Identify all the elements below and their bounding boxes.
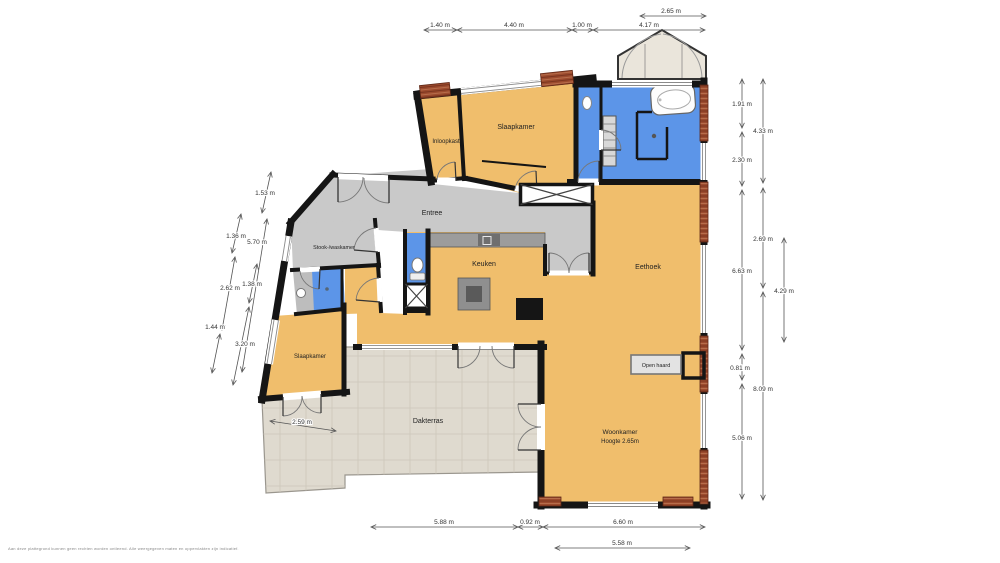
- radiator-icon: [603, 116, 616, 166]
- kitchen-island: [458, 278, 490, 310]
- stook-label: Stook-/waskamer: [313, 245, 355, 251]
- dim-label: 1.00 m: [572, 22, 592, 29]
- floorplan-page: Open haard Inloopkast Slaapkamer Entree …: [0, 0, 1000, 563]
- dim-label: 1.36 m: [226, 233, 246, 240]
- shaft-cross-box-small: [406, 284, 428, 308]
- room-keuken: [357, 232, 545, 346]
- dim-label: 3.20 m: [235, 341, 255, 348]
- disclaimer-text: Aan deze plattegrond kunnen geen rechten…: [8, 546, 239, 551]
- dim-label: 4.17 m: [639, 22, 659, 29]
- dim-label: 0.81 m: [730, 365, 750, 372]
- room-slaapkamer-2-notch: [345, 266, 381, 314]
- kitchen-counter: [429, 233, 545, 247]
- shaft-cross-box-large: [521, 185, 593, 205]
- dim-label: 5.70 m: [247, 239, 267, 246]
- bathtub-icon: [650, 83, 696, 115]
- dim-label: 1.40 m: [430, 22, 450, 29]
- eethoek-label: Eethoek: [635, 264, 661, 271]
- dim-label: 2.30 m: [732, 157, 752, 164]
- dim-label: 5.06 m: [732, 435, 752, 442]
- inloopkast-label: Inloopkast: [432, 139, 460, 145]
- floorplan-canvas: Open haard Inloopkast Slaapkamer Entree …: [0, 0, 1000, 563]
- woonkamer-label: Woonkamer: [603, 429, 639, 436]
- dim-label: 6.63 m: [732, 268, 752, 275]
- dim-label: 1.91 m: [732, 101, 752, 108]
- slaapkamer1-label: Slaapkamer: [497, 124, 535, 131]
- dim-label: 1.44 m: [205, 324, 225, 331]
- dim-label: 6.60 m: [613, 519, 633, 526]
- room-slaapkamer-1: [458, 81, 577, 193]
- open-haard-label: Open haard: [642, 363, 670, 369]
- dim-label: 1.53 m: [255, 190, 275, 197]
- dim-label: 2.62 m: [220, 285, 240, 292]
- keuken-label: Keuken: [472, 261, 496, 268]
- dim-label: 0.92 m: [520, 519, 540, 526]
- sink-icon: [583, 97, 592, 110]
- dim-label: 2.65 m: [661, 8, 681, 15]
- slaapkamer2-label: Slaapkamer: [294, 354, 326, 360]
- entree-label: Entree: [422, 210, 443, 217]
- dim-label: 5.58 m: [612, 540, 632, 547]
- dim-label: 8.09 m: [753, 386, 773, 393]
- wall-block-keuken-corner: [516, 298, 543, 320]
- woonkamer-height-label: Hoogte 2.65m: [601, 439, 639, 445]
- dim-label: 4.29 m: [774, 288, 794, 295]
- dim-label: 2.69 m: [753, 236, 773, 243]
- shower-drain-icon: [325, 287, 329, 291]
- dim-label: 4.33 m: [753, 128, 773, 135]
- shower-area: [312, 268, 345, 312]
- dim-label: 1.38 m: [242, 281, 262, 288]
- roof-gable: [618, 30, 706, 79]
- dim-label: 5.88 m: [434, 519, 454, 526]
- shower-head-icon: [652, 134, 656, 138]
- dim-label: 4.40 m: [504, 22, 524, 29]
- dakterras-label: Dakterras: [413, 418, 444, 425]
- dim-label: 2.59 m: [292, 419, 312, 426]
